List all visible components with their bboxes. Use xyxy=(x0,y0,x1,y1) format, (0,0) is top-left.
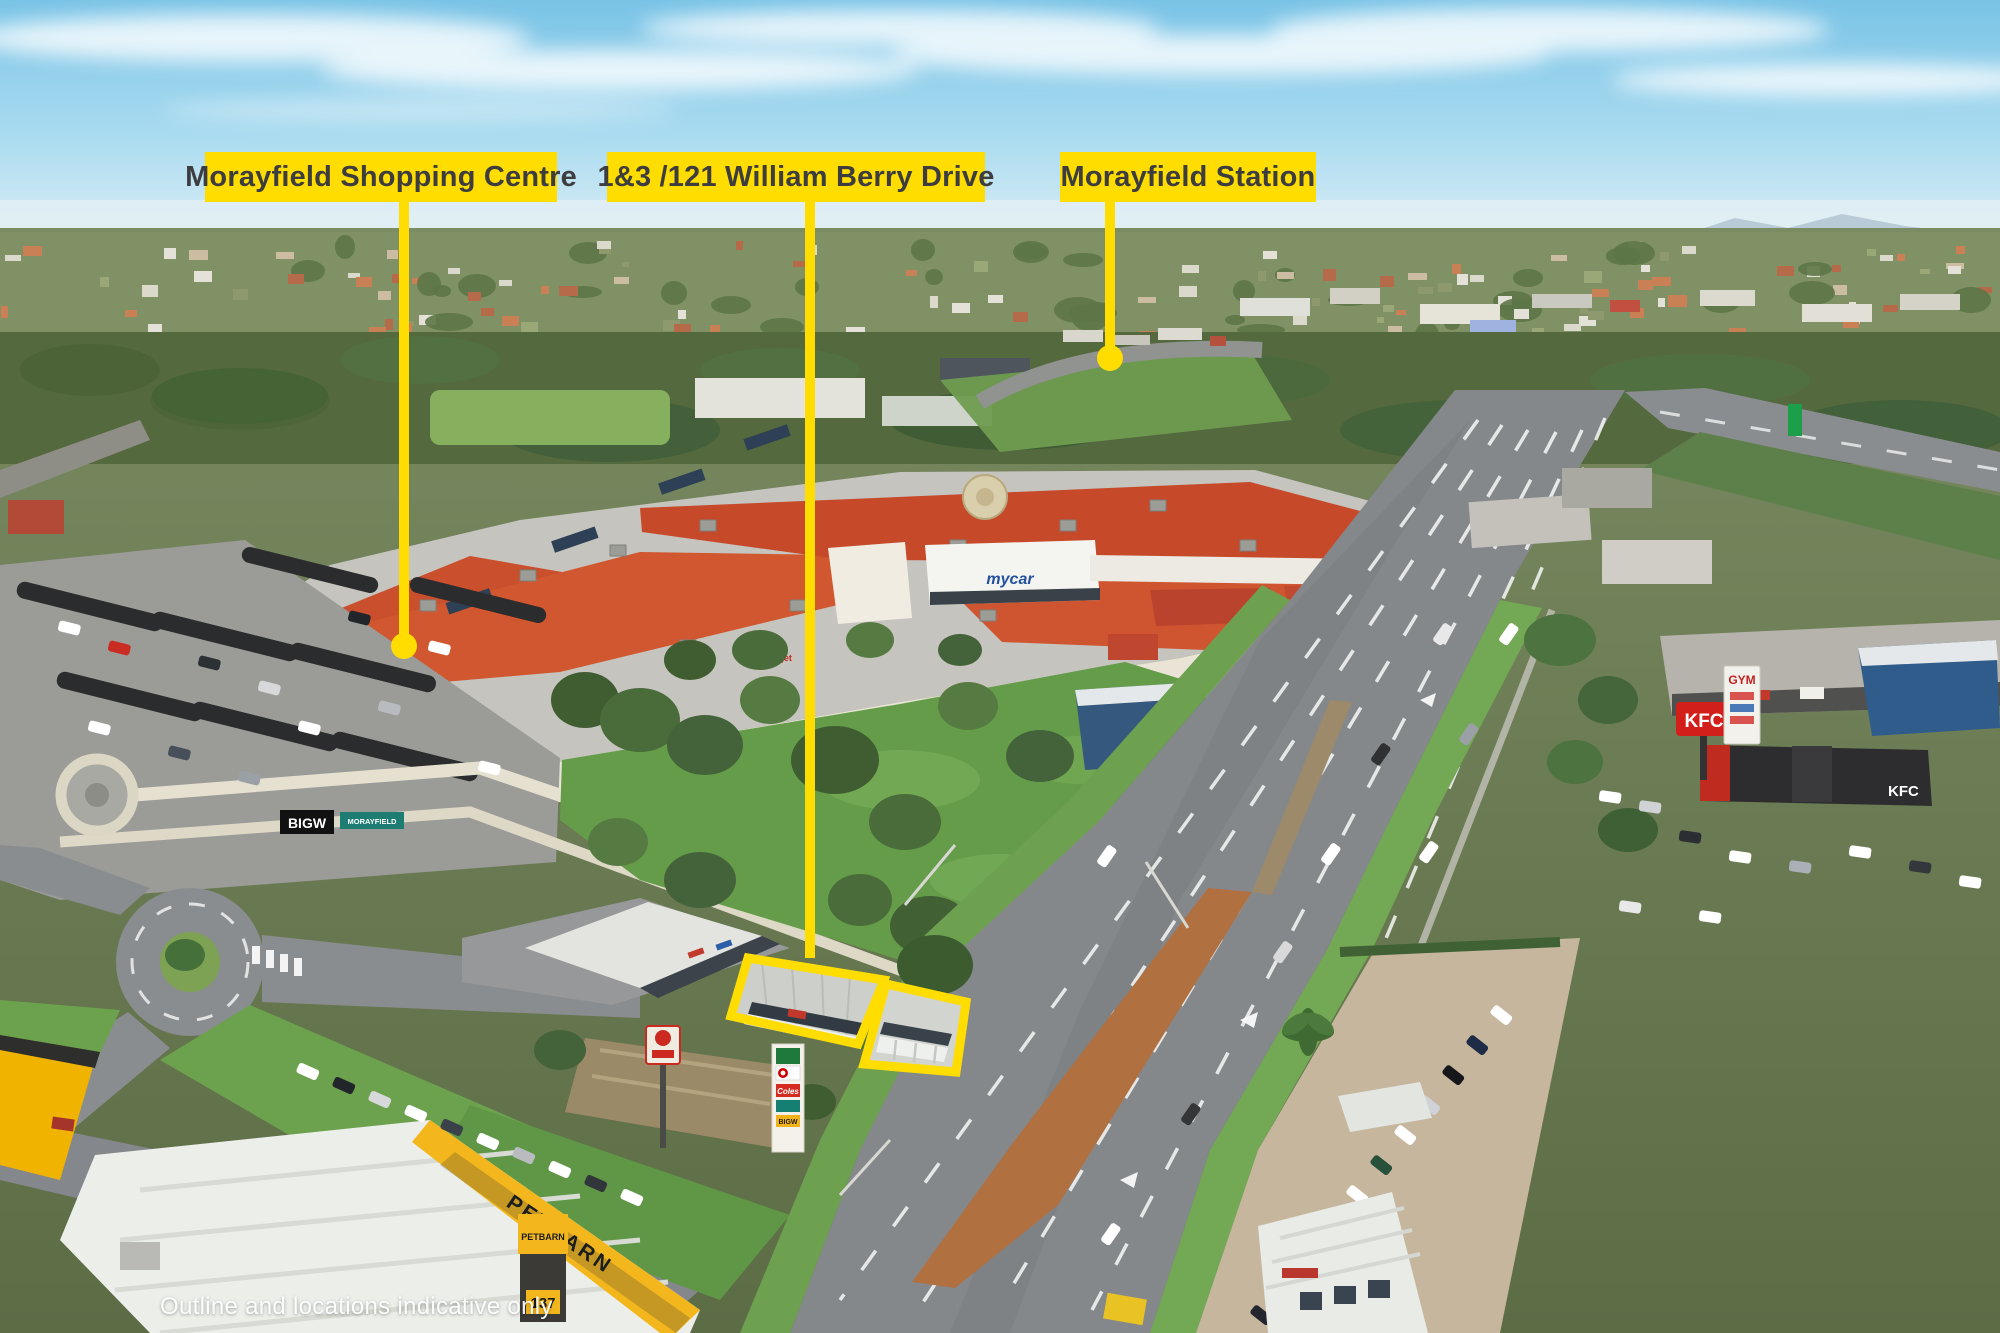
bigw-sign: BIGW xyxy=(280,810,334,834)
mall-entrance-portico xyxy=(828,542,912,624)
coles-sign-text: Coles xyxy=(777,1087,799,1096)
morayfield-carpark-sign: MORAYFIELD xyxy=(340,812,404,829)
disclaimer-text: Outline and locations indicative only xyxy=(160,1293,553,1321)
kfc-pylon-text: KFC xyxy=(1684,711,1723,732)
gym-sign-text: GYM xyxy=(1728,673,1755,687)
school-building-roof xyxy=(695,378,865,418)
sports-field xyxy=(430,390,670,445)
red-roof-shed xyxy=(8,500,64,534)
shopping-village-pylon-sign: Coles BIGW xyxy=(772,1044,804,1152)
label-morayfield-station: Morayfield Station xyxy=(1060,152,1316,202)
label-morayfield-shopping-centre: Morayfield Shopping Centre xyxy=(205,152,557,202)
label-subject-address: 1&3 /121 William Berry Drive xyxy=(607,152,985,202)
morayfield-carpark-sign-text: MORAYFIELD xyxy=(348,817,397,826)
gym-pylon-sign: GYM xyxy=(1724,666,1760,744)
aerial-photo: Target BIGW MORAYFIELD xyxy=(0,0,2000,1333)
bigw-pylon-text: BIGW xyxy=(778,1119,797,1126)
bigw-sign-text: BIGW xyxy=(288,815,327,831)
bp-pylon-sign xyxy=(1788,404,1802,436)
kfc-roof-sign-text: KFC xyxy=(1888,783,1919,800)
petbarn-pylon-text: PETBARN xyxy=(521,1232,565,1242)
mycar-sign-text: mycar xyxy=(986,571,1034,588)
sky xyxy=(0,0,2000,245)
